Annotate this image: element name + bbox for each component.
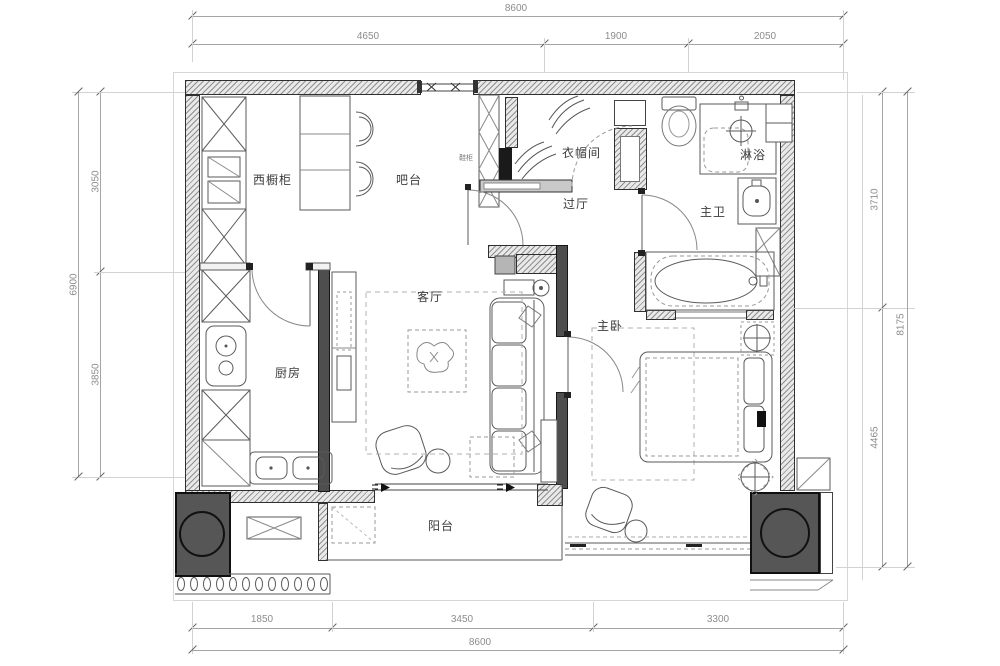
dim-top-segment-1: 4650 bbox=[344, 31, 392, 42]
dim-right-total: 8175 bbox=[896, 301, 907, 349]
dim-top-segment-2: 1900 bbox=[592, 31, 640, 42]
ext-line bbox=[862, 95, 863, 580]
dim-bottom-segment-1: 1850 bbox=[238, 614, 286, 625]
room-label-kitchen: 厨房 bbox=[275, 364, 301, 381]
dim-bottom-segment-line bbox=[192, 628, 843, 629]
room-label-balcony: 阳台 bbox=[428, 517, 454, 534]
ext-line bbox=[332, 602, 333, 632]
dim-top-total: 8600 bbox=[492, 3, 540, 14]
bathtub bbox=[646, 252, 774, 318]
dim-bottom-total-line bbox=[192, 650, 843, 651]
dim-left-segment-2: 3850 bbox=[91, 351, 102, 399]
ext-line bbox=[94, 272, 185, 273]
hall-door bbox=[465, 184, 523, 245]
room-label-west-cabinet: 西橱柜 bbox=[253, 171, 292, 188]
dim-top-segment-3: 2050 bbox=[741, 31, 789, 42]
vent-box bbox=[247, 517, 301, 539]
ext-line bbox=[192, 602, 193, 654]
bathroom-door bbox=[638, 188, 697, 256]
ext-line bbox=[72, 92, 185, 93]
bedroom-furniture bbox=[565, 322, 830, 555]
room-label-master-bedroom: 主卧 bbox=[597, 317, 623, 334]
ext-line bbox=[843, 602, 844, 654]
ext-line bbox=[836, 567, 915, 568]
room-label-living-room: 客厅 bbox=[417, 288, 443, 305]
bar-stools bbox=[356, 112, 373, 196]
dim-right-segment-line bbox=[882, 92, 883, 567]
dim-top-segment-line bbox=[192, 44, 843, 45]
ext-line bbox=[593, 602, 594, 632]
room-label-master-bath: 主卫 bbox=[700, 203, 726, 220]
dim-bottom-segment-2: 3450 bbox=[438, 614, 486, 625]
ext-line bbox=[72, 477, 185, 478]
ext-line bbox=[544, 38, 545, 72]
ext-line bbox=[797, 92, 915, 93]
room-label-bar: 吧台 bbox=[396, 171, 422, 188]
cloakroom-hangers bbox=[515, 96, 590, 179]
room-label-hall: 过厅 bbox=[563, 195, 589, 212]
dim-left-segment-line bbox=[100, 92, 101, 477]
balcony-railing bbox=[175, 574, 330, 594]
room-label-shoe-cabinet: 鞋柜 bbox=[459, 153, 473, 163]
dim-bottom-total: 8600 bbox=[456, 637, 504, 648]
bar-counter bbox=[300, 96, 350, 210]
dim-right-total-line bbox=[907, 92, 908, 567]
dim-right-segment-2: 4465 bbox=[870, 414, 881, 462]
entry-door bbox=[417, 81, 478, 93]
kitchen-cabinets bbox=[202, 97, 332, 486]
bathroom-vanity bbox=[738, 104, 792, 276]
living-room-furniture bbox=[332, 256, 557, 482]
kitchen-door bbox=[200, 263, 330, 326]
room-label-shower: 淋浴 bbox=[740, 146, 766, 163]
dim-top-total-line bbox=[192, 16, 843, 17]
ext-line bbox=[192, 10, 193, 62]
floor-plan-canvas: 西橱柜 吧台 鞋柜 衣帽间 过厅 主卫 淋浴 厨房 客厅 主卧 阳台 8600 … bbox=[0, 0, 1000, 666]
dim-bottom-segment-3: 3300 bbox=[694, 614, 742, 625]
dim-left-total: 6900 bbox=[69, 261, 80, 309]
dim-left-segment-1: 3050 bbox=[91, 158, 102, 206]
ext-line bbox=[688, 38, 689, 72]
dim-right-segment-1: 3710 bbox=[870, 176, 881, 224]
ext-line bbox=[843, 10, 844, 80]
bedroom-door bbox=[564, 331, 623, 398]
toilet bbox=[662, 97, 696, 146]
room-label-cloakroom: 衣帽间 bbox=[562, 144, 601, 161]
